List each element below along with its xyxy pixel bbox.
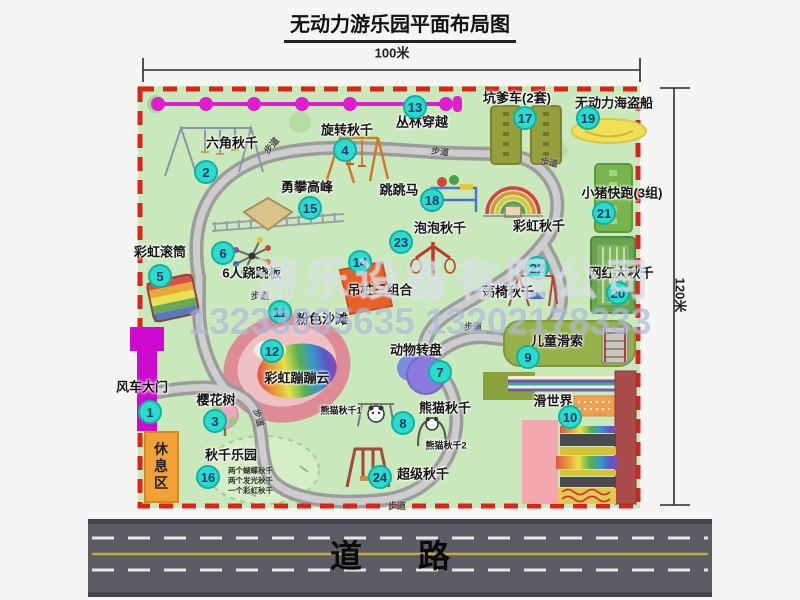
- attraction-label-6: 6人跷跷板: [222, 267, 281, 280]
- attraction-badge-8: 8: [391, 411, 415, 435]
- swing-park-subitem: 一个彩虹秋千: [228, 486, 273, 496]
- attraction-label-11: 粉色沙滩: [296, 313, 348, 326]
- attraction-badge-12: 12: [260, 339, 284, 363]
- page-title: 无动力游乐园平面布局图: [284, 8, 516, 43]
- extra-label-2: 熊猫秋千2: [425, 442, 466, 451]
- park-layout-map: 无动力游乐园平面布局图 100米 120米 道路 休息区 游乐设备有限公司 13…: [0, 0, 800, 600]
- attraction-badge-14: 14: [348, 250, 372, 274]
- attraction-badge-3: 3: [203, 409, 227, 433]
- attraction-badge-9: 9: [516, 345, 540, 369]
- attraction-label-5: 彩虹滚筒: [134, 246, 186, 259]
- attraction-badge-7: 7: [428, 360, 452, 384]
- attraction-badge-22: 22: [525, 256, 549, 280]
- attraction-badge-19: 19: [576, 106, 600, 130]
- attraction-badge-15: 15: [298, 196, 322, 220]
- attraction-badge-6: 6: [211, 241, 235, 265]
- attraction-badge-11: 11: [268, 300, 292, 324]
- attraction-badge-2: 2: [194, 160, 218, 184]
- attraction-badge-23: 23: [389, 230, 413, 254]
- attraction-label-20: 网红大秋千: [588, 267, 653, 280]
- attraction-label-7: 动物转盘: [390, 344, 442, 357]
- extra-label-0: 彩虹秋千: [513, 220, 565, 233]
- extra-label-1: 熊猫秋千1: [320, 407, 361, 416]
- attraction-badge-24: 24: [368, 465, 392, 489]
- path-label-6: 步道: [464, 323, 482, 332]
- attraction-label-9: 儿童滑索: [531, 335, 583, 348]
- height-dimension-label: 120米: [672, 278, 691, 313]
- attraction-label-13: 丛林穿越: [396, 116, 448, 129]
- path-label-5: 步道: [388, 502, 406, 511]
- swing-park-sublabels: 两个蝴蝶秋千两个发光秋千一个彩虹秋千: [228, 466, 273, 496]
- width-dimension-label: 100米: [375, 43, 410, 62]
- attraction-badge-21: 21: [592, 201, 616, 225]
- attraction-label-22: 荡椅秋千: [482, 286, 534, 299]
- attraction-badge-17: 17: [513, 106, 537, 130]
- attraction-label-4: 旋转秋千: [321, 124, 373, 137]
- attraction-label-12: 彩虹蹦蹦云: [264, 372, 329, 385]
- attraction-label-15: 勇攀高峰: [281, 181, 333, 194]
- attraction-badge-1: 1: [138, 400, 162, 424]
- attraction-badge-4: 4: [333, 138, 357, 162]
- attraction-label-21: 小猪快跑(3组): [582, 187, 663, 200]
- attraction-label-14: 吊桩三组合: [347, 284, 412, 297]
- attraction-badge-16: 16: [196, 465, 220, 489]
- attraction-label-17: 坑爹车(2套): [483, 92, 551, 105]
- attraction-label-3: 樱花树: [196, 394, 235, 407]
- swing-park-subitem: 两个发光秋千: [228, 476, 273, 486]
- attraction-label-16: 秋千乐园: [205, 449, 257, 462]
- swing-park-subitem: 两个蝴蝶秋千: [228, 466, 273, 476]
- attraction-label-2: 六角秋千: [206, 137, 258, 150]
- attraction-label-24: 超级秋千: [397, 468, 449, 481]
- attraction-label-18: 跳跳马: [379, 184, 418, 197]
- attraction-label-1: 风车大门: [116, 381, 168, 394]
- attraction-badge-20: 20: [606, 281, 630, 305]
- attraction-label-23: 泡泡秋千: [414, 222, 466, 235]
- path-label-3: 步道: [251, 292, 269, 301]
- rest-area-label: 休息区: [151, 442, 171, 493]
- attraction-badge-5: 5: [148, 264, 172, 288]
- attraction-badge-10: 10: [558, 405, 582, 429]
- attraction-badge-13: 13: [403, 95, 427, 119]
- attraction-badge-18: 18: [420, 188, 444, 212]
- attraction-label-8: 熊猫秋千: [419, 402, 471, 415]
- road-label: 道路: [330, 531, 506, 577]
